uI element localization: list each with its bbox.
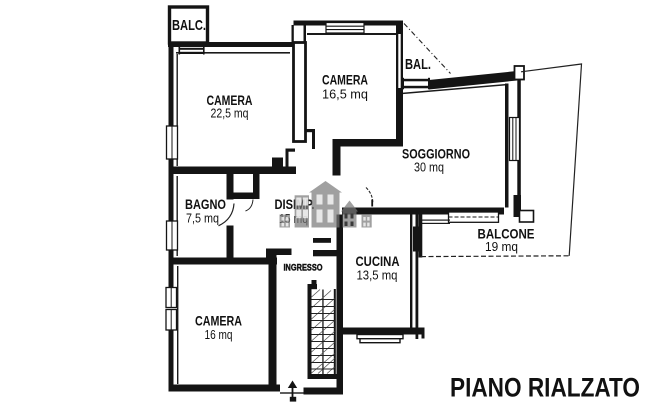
svg-text:BALC.: BALC. xyxy=(172,17,206,34)
svg-text:13,5 mq: 13,5 mq xyxy=(357,268,398,283)
svg-text:22,5 mq: 22,5 mq xyxy=(211,106,249,121)
svg-text:7,5 mq: 7,5 mq xyxy=(186,211,219,226)
svg-text:19 mq: 19 mq xyxy=(485,239,518,254)
svg-text:16,5 mq: 16,5 mq xyxy=(322,87,368,102)
svg-text:BAL.: BAL. xyxy=(405,57,431,73)
svg-text:16 mq: 16 mq xyxy=(205,327,233,342)
svg-text:30 mq: 30 mq xyxy=(414,160,444,175)
svg-text:CAMERA: CAMERA xyxy=(322,72,368,88)
svg-text:INGRESSO: INGRESSO xyxy=(284,263,323,274)
svg-text:PIANO RIALZATO: PIANO RIALZATO xyxy=(450,373,640,403)
